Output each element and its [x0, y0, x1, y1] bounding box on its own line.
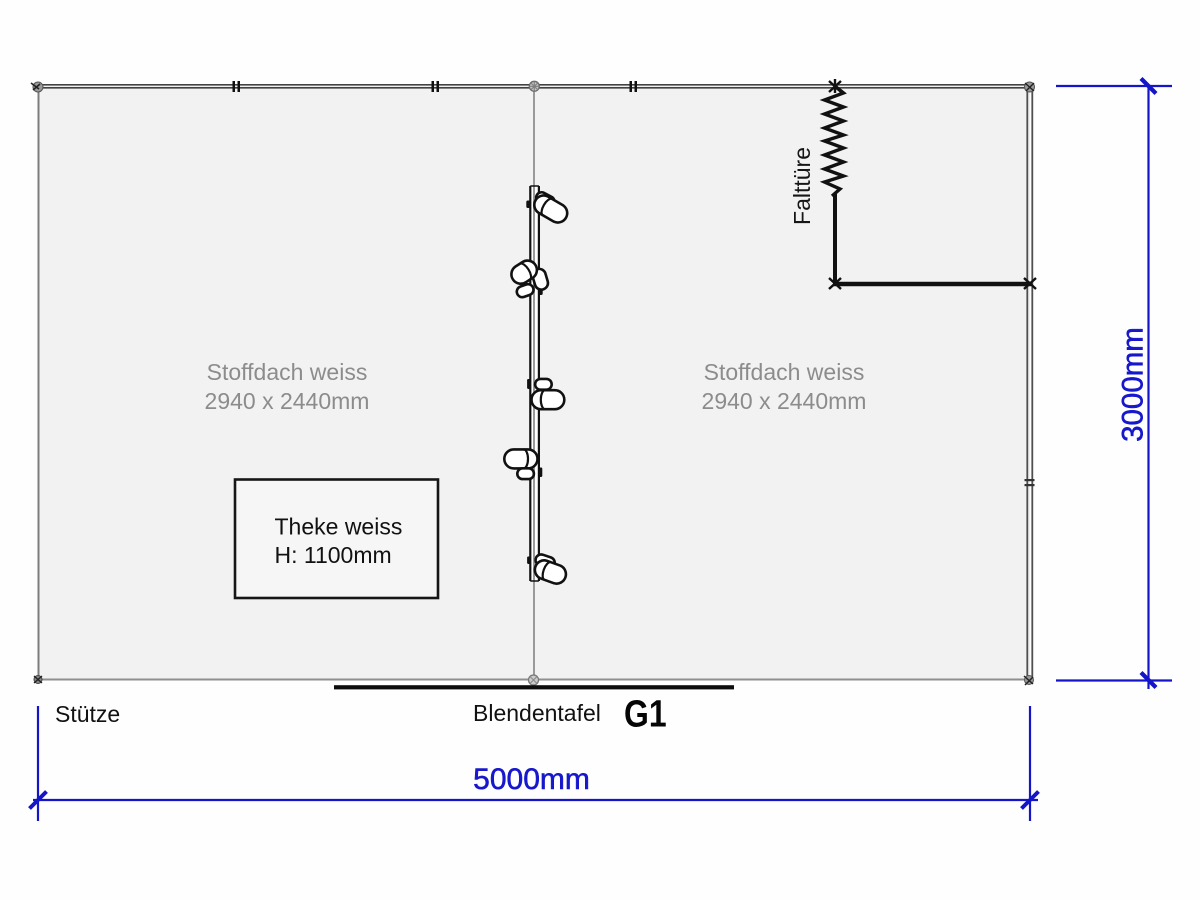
svg-text:Stütze: Stütze [55, 701, 120, 727]
svg-text:2940 x 2440mm: 2940 x 2440mm [205, 388, 370, 414]
svg-text:5000mm: 5000mm [473, 763, 590, 796]
svg-text:H: 1100mm: H: 1100mm [275, 542, 392, 568]
svg-text:Stoffdach weiss: Stoffdach weiss [207, 359, 368, 385]
svg-text:Blendentafel: Blendentafel [473, 700, 601, 726]
svg-text:G1: G1 [624, 693, 667, 735]
svg-text:Stoffdach weiss: Stoffdach weiss [704, 359, 865, 385]
svg-text:Theke weiss: Theke weiss [275, 514, 403, 540]
svg-text:2940 x 2440mm: 2940 x 2440mm [702, 388, 867, 414]
svg-text:3000mm: 3000mm [1117, 327, 1150, 442]
svg-text:Falttüre: Falttüre [789, 147, 815, 225]
